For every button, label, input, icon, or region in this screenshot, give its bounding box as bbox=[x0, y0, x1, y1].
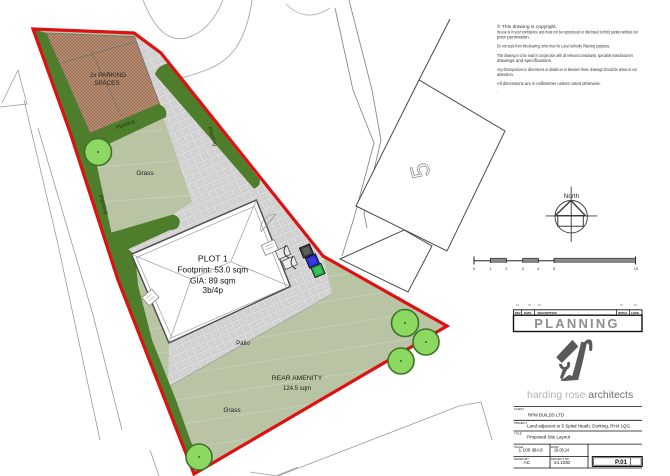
svg-text:All dimensions are in millimet: All dimensions are in millimetres unless… bbox=[497, 81, 601, 86]
svg-text:North: North bbox=[564, 193, 580, 200]
svg-text:Patio: Patio bbox=[236, 341, 250, 347]
svg-text:TITLE: TITLE bbox=[514, 432, 522, 436]
svg-text:DATE: DATE bbox=[524, 311, 532, 315]
svg-text:124.5 sqm: 124.5 sqm bbox=[283, 386, 311, 392]
svg-text:PLANNING: PLANNING bbox=[534, 316, 620, 331]
svg-text:prior permission.: prior permission. bbox=[497, 35, 530, 40]
svg-text:DESCRIPTION: DESCRIPTION bbox=[538, 311, 557, 315]
svg-text:REV: REV bbox=[515, 311, 521, 315]
svg-text:Any discrepancies in dimension: Any discrepancies in dimensions or detai… bbox=[497, 67, 637, 72]
svg-text:3b/4p: 3b/4p bbox=[203, 286, 224, 295]
svg-text:REAR AMENITY: REAR AMENITY bbox=[272, 375, 323, 382]
svg-text:24.1030: 24.1030 bbox=[554, 460, 570, 466]
svg-text:INITIAL: INITIAL bbox=[618, 311, 628, 315]
svg-text:AC: AC bbox=[524, 460, 531, 466]
svg-text:Do not scale from this drawing: Do not scale from this drawing, other th… bbox=[497, 44, 610, 49]
svg-text:Proposed Site Layout: Proposed Site Layout bbox=[527, 435, 571, 441]
svg-text:Grass: Grass bbox=[223, 407, 241, 414]
svg-text:1:100 @A3: 1:100 @A3 bbox=[519, 448, 543, 454]
svg-text:P.01: P.01 bbox=[615, 459, 627, 466]
svg-text:drawings and specifications.: drawings and specifications. bbox=[497, 58, 552, 63]
svg-text:© This drawing is copyright.: © This drawing is copyright. bbox=[497, 24, 557, 29]
svg-text:harding rose architects: harding rose architects bbox=[527, 389, 633, 401]
svg-text:GIA: 89 sqm: GIA: 89 sqm bbox=[190, 277, 236, 286]
svg-text:Grass: Grass bbox=[136, 170, 154, 177]
svg-text:SPACES: SPACES bbox=[94, 80, 119, 87]
svg-text:CHKD: CHKD bbox=[631, 311, 639, 315]
svg-text:Land adjacent to 5 Spital Heat: Land adjacent to 5 Spital Heath, Dorking… bbox=[527, 424, 630, 430]
svg-text:RPM BUILDS LTD: RPM BUILDS LTD bbox=[528, 413, 564, 419]
svg-text:2x PARKING: 2x PARKING bbox=[90, 72, 126, 79]
svg-text:Footprint: 53.0 sqm: Footprint: 53.0 sqm bbox=[178, 266, 249, 275]
svg-text:18.06.24: 18.06.24 bbox=[554, 448, 569, 454]
svg-text:10: 10 bbox=[634, 266, 639, 271]
svg-text:.: . bbox=[497, 89, 498, 94]
svg-text:PROJECT: PROJECT bbox=[514, 421, 527, 425]
svg-text:PLOT 1: PLOT 1 bbox=[198, 254, 228, 264]
svg-text:attention.: attention. bbox=[497, 72, 514, 77]
svg-text:CLIENT: CLIENT bbox=[514, 407, 524, 411]
